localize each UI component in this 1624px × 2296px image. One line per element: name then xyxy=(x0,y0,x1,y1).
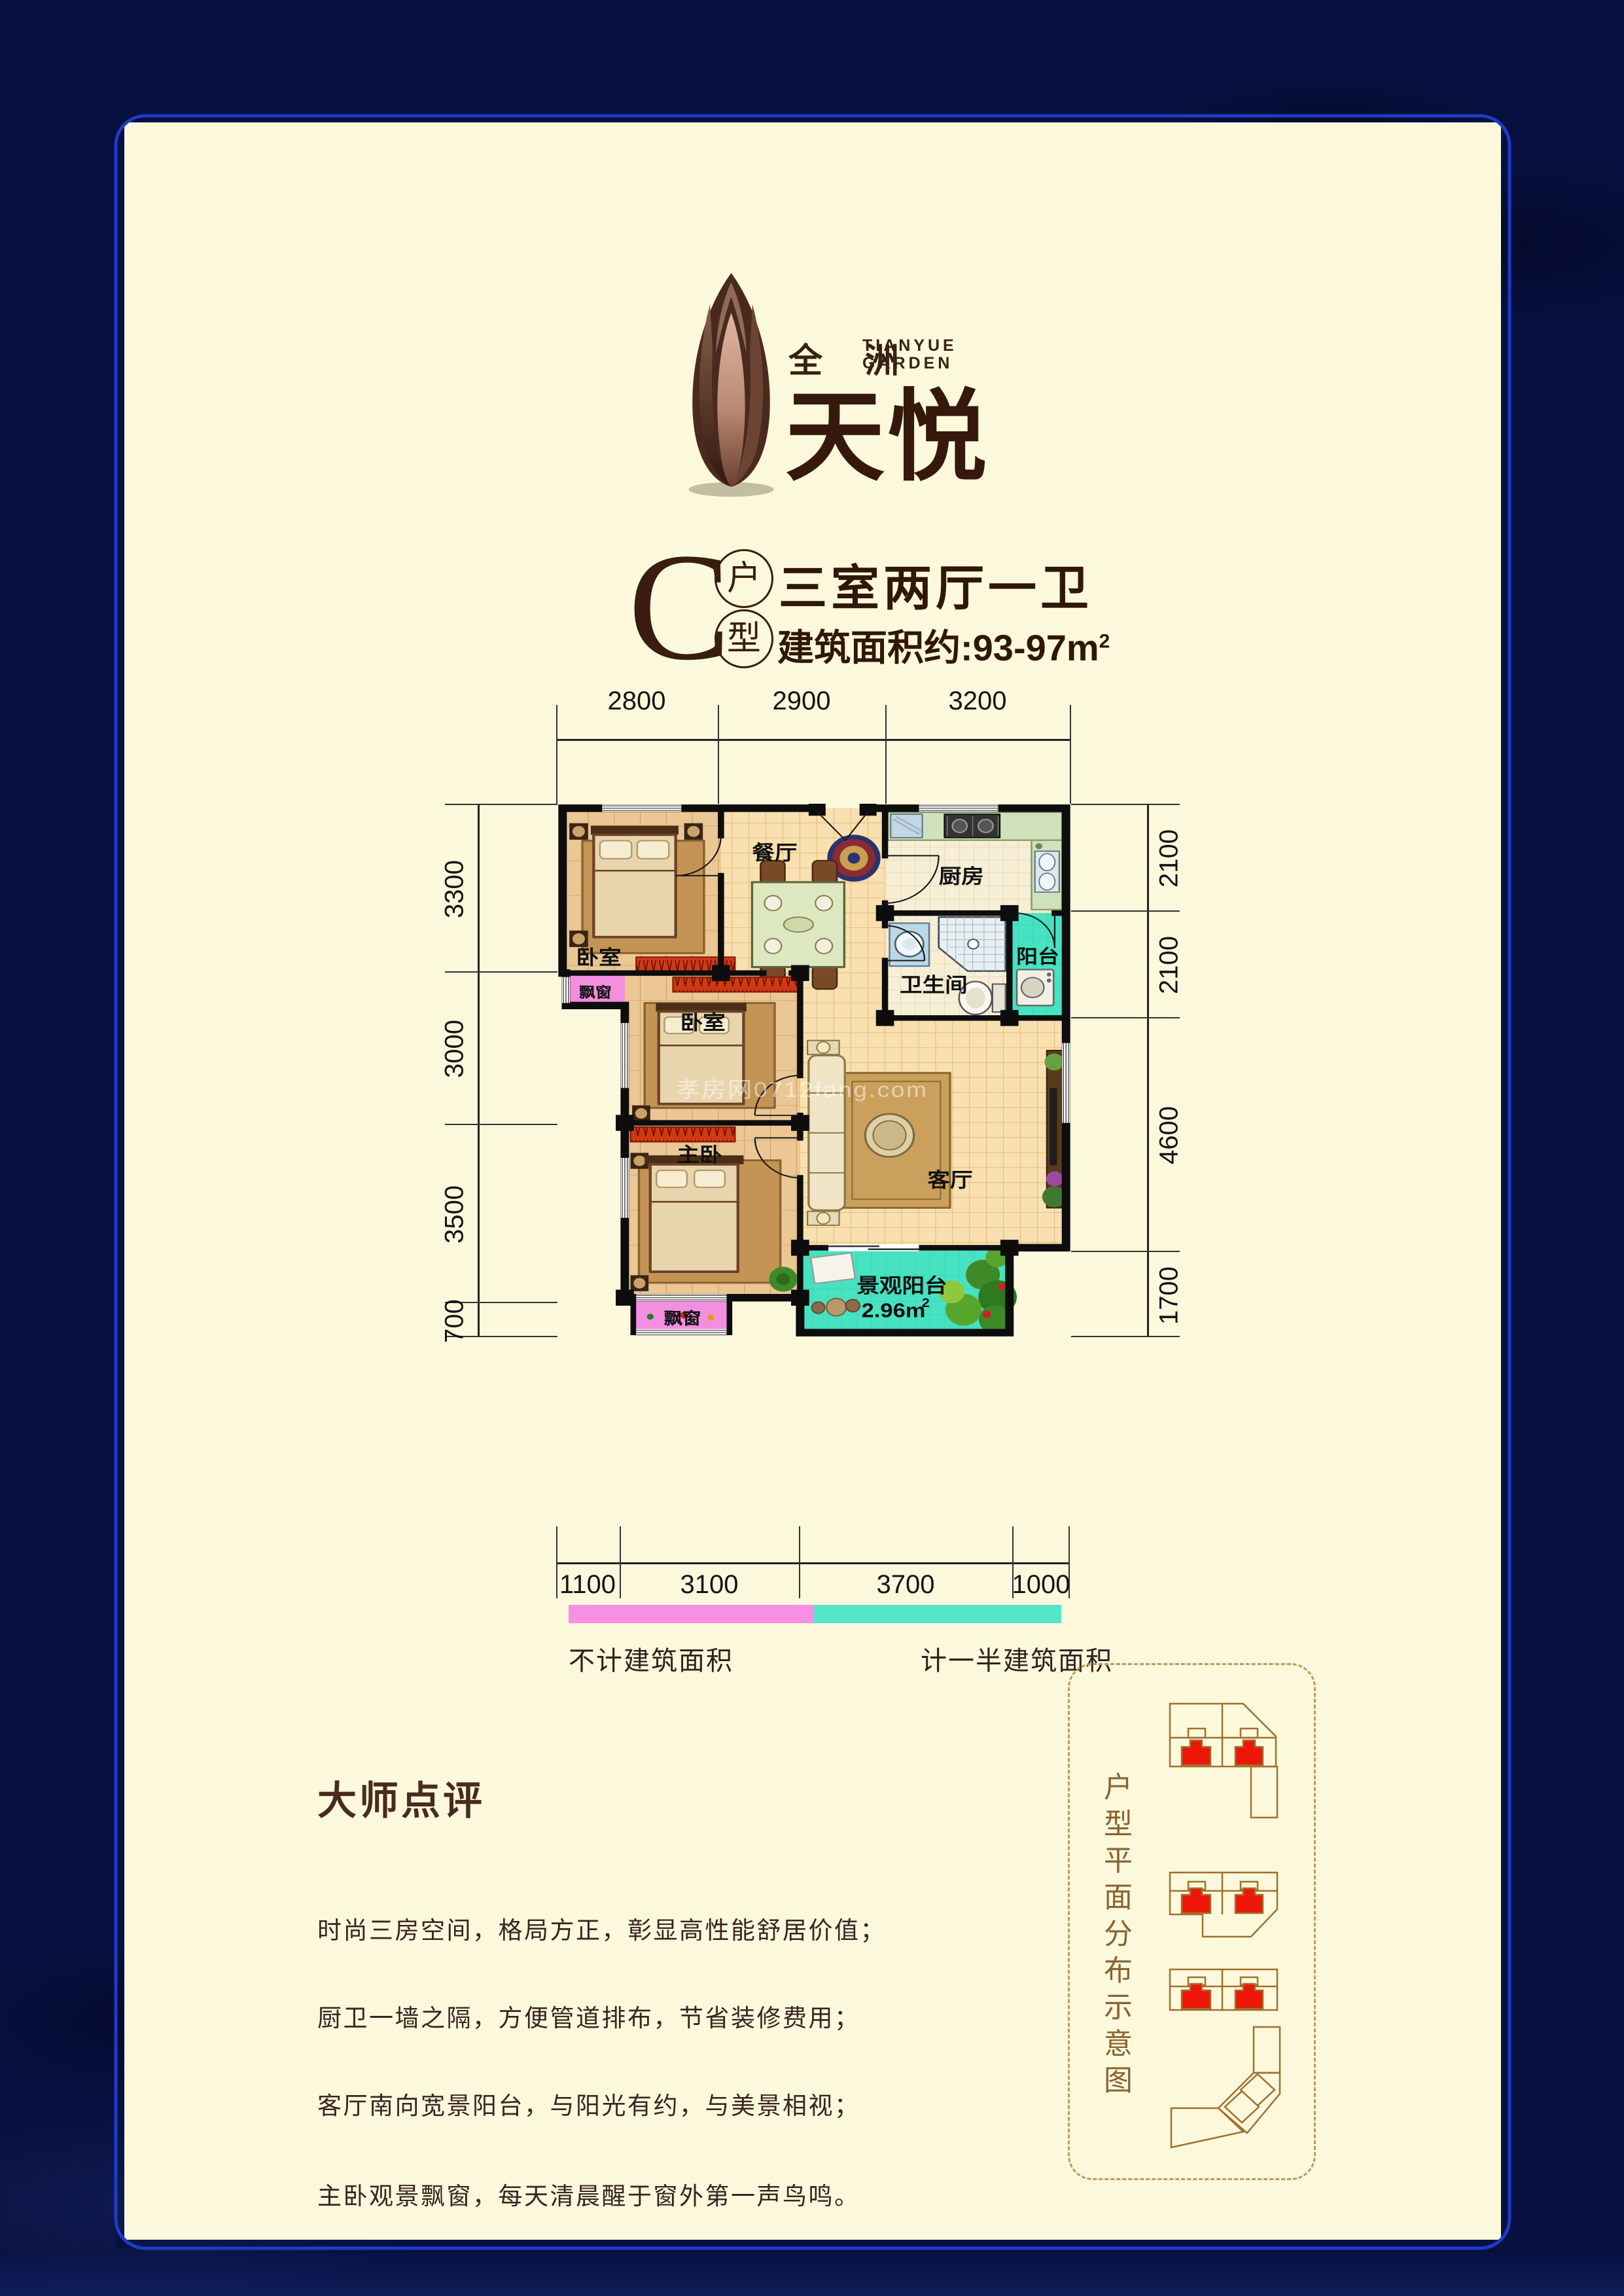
flyer-canvas: { "page": {"bg_navy": "#081040", "frame_… xyxy=(0,0,1624,2296)
page-frame xyxy=(0,0,1624,2296)
frame-line xyxy=(116,116,1509,2248)
